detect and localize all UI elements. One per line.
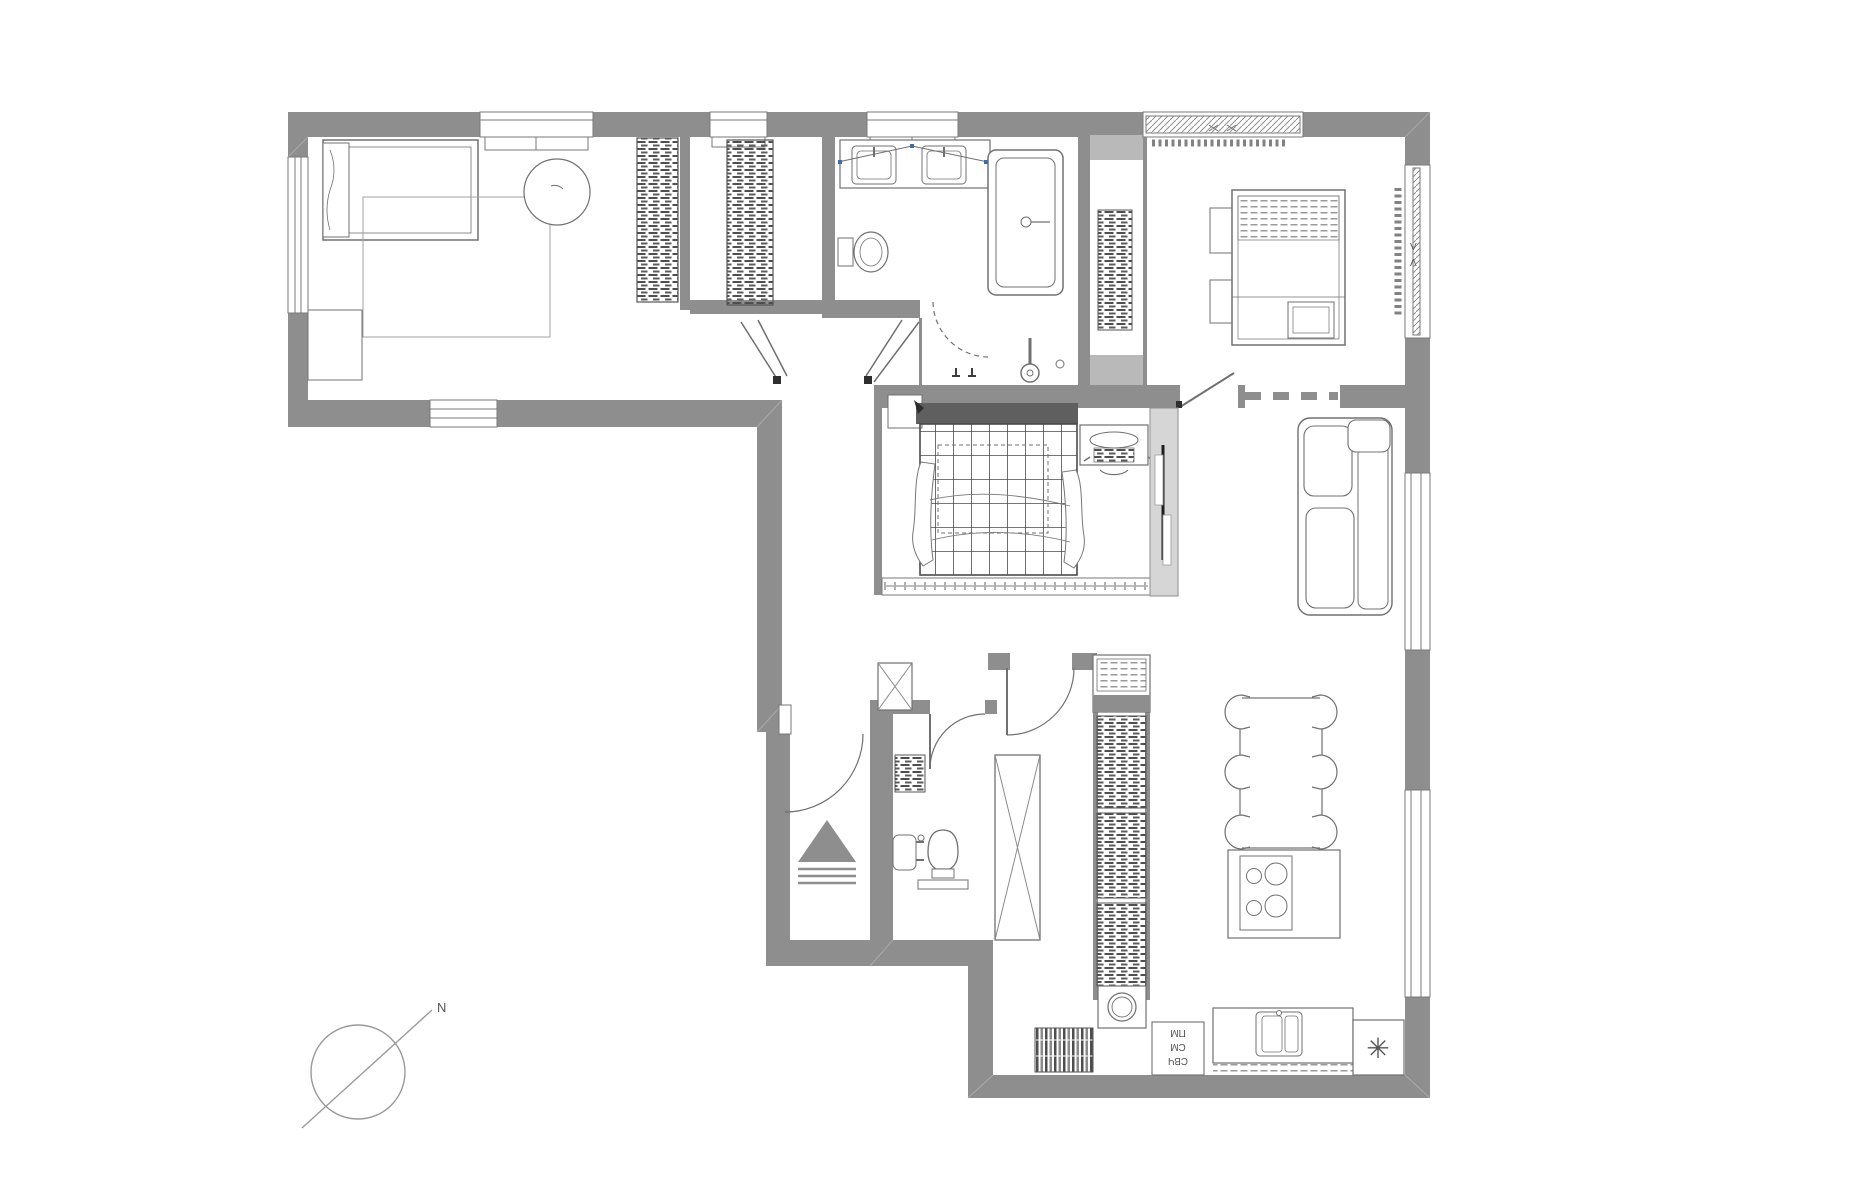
wall-bed2-left xyxy=(1143,135,1147,385)
wc-toilet xyxy=(918,830,968,889)
nightstand-right-lamp xyxy=(1080,425,1154,475)
mirror-mark-center xyxy=(910,144,914,148)
niche-cap-bottom xyxy=(1090,355,1145,385)
window-kids-left xyxy=(288,157,308,313)
bed-master xyxy=(913,424,1085,575)
window-bed2-top xyxy=(1143,112,1303,137)
toilet-bathroom xyxy=(838,232,888,272)
single-bed xyxy=(323,140,478,240)
wc-room xyxy=(893,714,985,889)
towel-radiator-niche xyxy=(1098,210,1132,330)
counter-edge xyxy=(1213,1063,1353,1072)
dining xyxy=(1225,695,1337,849)
window-tilt-mark-a: Λ xyxy=(1410,258,1417,269)
bedroom2-door xyxy=(1176,373,1234,408)
wall-bath-lower xyxy=(822,300,920,318)
window-tilt-mark-v: V xyxy=(1410,242,1417,253)
kids-room xyxy=(308,138,678,380)
compass xyxy=(302,1010,432,1128)
window-master-bottom xyxy=(882,578,1150,595)
door-stop-right xyxy=(864,376,872,384)
bed-headboard xyxy=(916,403,1078,424)
door-hinge-mark xyxy=(1176,401,1182,408)
vanity-double-sink xyxy=(838,140,990,188)
master-bedroom xyxy=(888,395,1178,596)
bedroom2 xyxy=(1176,190,1345,408)
kitchen-counter xyxy=(1213,1008,1353,1072)
hall-door-arc xyxy=(785,734,863,812)
wall-bed2-bottom-a xyxy=(1145,385,1180,408)
bookshelf xyxy=(637,138,678,302)
nightstand-b xyxy=(1210,280,1232,323)
wc-shelf xyxy=(895,755,925,792)
shower-door-arc xyxy=(933,302,988,357)
bathtub xyxy=(988,150,1063,295)
floor-plan-drawing: V Λ xyxy=(0,0,1875,1200)
sliding-wardrobe xyxy=(1150,408,1178,596)
round-table xyxy=(524,159,590,225)
sofa-chaise xyxy=(1304,426,1352,496)
wall-master-left xyxy=(874,385,882,595)
door-leaf xyxy=(1180,373,1234,407)
closet-shelving xyxy=(727,140,773,305)
shower xyxy=(933,302,1064,382)
window-kids-top xyxy=(480,112,593,150)
window-living-right-2 xyxy=(1405,790,1430,997)
window-bed2-right xyxy=(1405,165,1430,338)
dresser xyxy=(308,310,362,380)
kitchen-door xyxy=(1007,668,1074,735)
shower-drain xyxy=(1056,360,1064,368)
splay-left xyxy=(741,320,787,382)
window-kids-bottom xyxy=(430,400,497,427)
splay-right xyxy=(866,320,919,382)
mirror-mark-left xyxy=(838,160,842,164)
wall-kids-closet xyxy=(680,135,690,310)
appliance-stack-label: ПМ СМ СВЧ xyxy=(1168,1027,1188,1066)
door-jamb xyxy=(779,705,791,734)
sink-bowl-small xyxy=(1285,1016,1298,1052)
sofa xyxy=(1298,418,1392,615)
base-cabinets xyxy=(1035,1028,1093,1072)
tall-storage-column xyxy=(1093,655,1150,986)
sink-bowl-main xyxy=(1262,1016,1282,1052)
washing-machine xyxy=(1098,986,1146,1028)
splayed-doorways xyxy=(741,320,919,384)
wc-door-arc xyxy=(930,714,985,769)
entry-marker xyxy=(798,820,856,883)
kitchen-door-arc xyxy=(1007,668,1074,735)
wc-sink xyxy=(893,835,924,870)
bed-double xyxy=(1232,190,1345,345)
appliance-label-line1: ПМ xyxy=(1170,1027,1186,1038)
dining-table xyxy=(1240,698,1322,848)
fridge-snowflake-symbol: ✳ xyxy=(1366,1033,1389,1064)
niche-cap-top xyxy=(1090,135,1145,160)
wall-bed2-bottom-jamb xyxy=(1238,385,1245,408)
sofa-seat xyxy=(1306,508,1354,608)
island xyxy=(1228,850,1340,938)
compass-north-label: N xyxy=(437,1000,446,1015)
appliance-label-line3: СВЧ xyxy=(1168,1055,1188,1066)
wc-toilet-base xyxy=(918,880,968,889)
entry-triangle xyxy=(798,820,856,862)
window-living-right-1 xyxy=(1405,473,1430,650)
wall-bath-left xyxy=(822,135,835,300)
wall-bed2-bottom-b xyxy=(1340,385,1405,408)
entry-threshold-lines xyxy=(798,869,856,883)
door-stop-left xyxy=(773,376,781,384)
wall-bath-bed2 xyxy=(1078,135,1090,385)
plumbing-valves xyxy=(952,368,976,376)
floor-plan-canvas: V Λ xyxy=(0,0,1875,1200)
nightstand-a xyxy=(1210,208,1232,253)
kitchen xyxy=(1007,655,1404,1075)
wall-shower-glass xyxy=(919,318,922,385)
appliance-label-line2: СМ xyxy=(1170,1041,1185,1052)
compass-needle xyxy=(302,1010,432,1128)
service-shaft xyxy=(995,755,1040,940)
bed-blanket xyxy=(1238,196,1339,240)
sofa-armrest xyxy=(1348,420,1390,452)
hall-console xyxy=(878,663,912,710)
